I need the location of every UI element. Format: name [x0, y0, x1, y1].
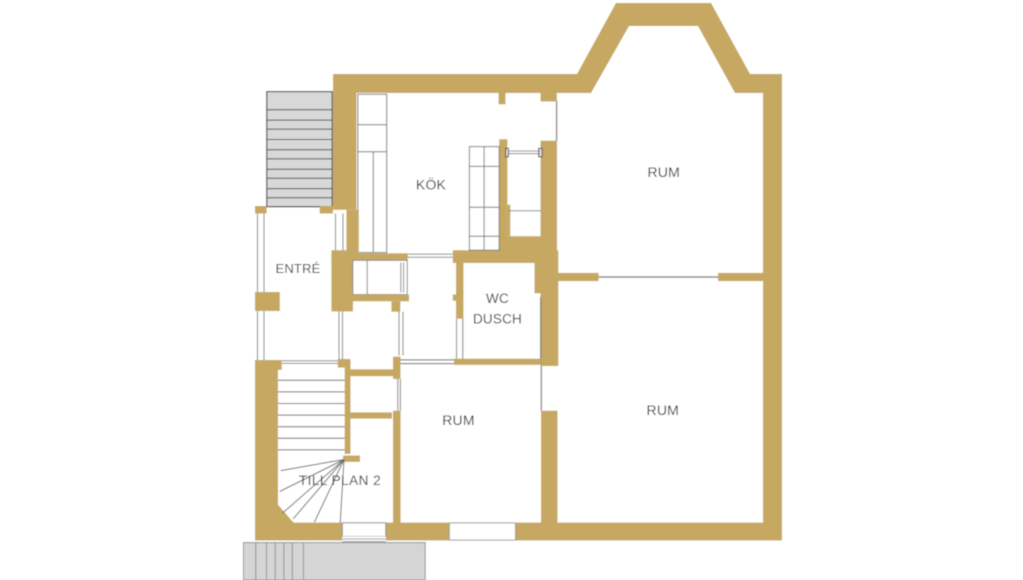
svg-text:RUM: RUM [647, 164, 679, 180]
svg-text:TILL PLAN 2: TILL PLAN 2 [299, 473, 381, 488]
svg-text:RUM: RUM [442, 412, 474, 428]
svg-text:DUSCH: DUSCH [473, 312, 522, 327]
svg-text:WC: WC [486, 291, 509, 306]
svg-text:KÖK: KÖK [416, 176, 447, 193]
svg-text:ENTRÉ: ENTRÉ [275, 261, 320, 276]
svg-text:RUM: RUM [647, 402, 679, 418]
